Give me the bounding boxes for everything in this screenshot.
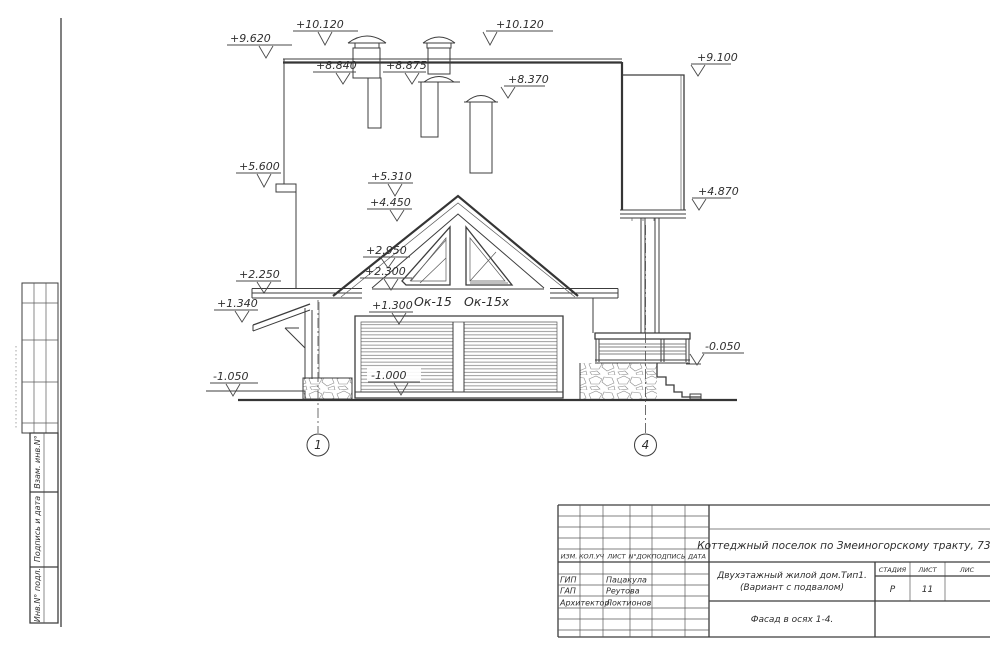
svg-text:ИЗМ.: ИЗМ. [561,553,578,561]
elevation-mark: +1.340 [214,297,258,322]
svg-text:+2.250: +2.250 [239,268,280,281]
svg-text:ЛИСТ: ЛИСТ [606,553,626,561]
elevation-mark: +4.870 [692,185,739,210]
elevation-mark: +8.840 [313,59,357,84]
name-gap: Реутова [606,587,640,596]
title-block-header-row: ИЗМ. КОЛ.УЧ ЛИСТ N°ДОК. ПОДПИСЬ ДАТА [561,553,706,561]
svg-text:+10.120: +10.120 [496,18,544,31]
object-title-line1: Двухэтажный жилой дом.Тип1. [716,571,867,581]
svg-text:+1.300: +1.300 [372,299,413,312]
elevation-mark: +2.250 [236,268,281,293]
name-gip: Пацакула [606,576,647,585]
house-elevation: Ок-15 Ок-15х [206,36,737,400]
svg-text:+8.875: +8.875 [386,59,427,72]
elevation-mark: +5.310 [368,170,413,196]
object-title-line2: (Вариант с подвалом) [740,583,844,593]
svg-text:+4.450: +4.450 [370,196,411,209]
svg-text:+4.870: +4.870 [698,185,739,198]
entry-canopy [253,302,352,399]
svg-text:+5.600: +5.600 [239,160,280,173]
elevation-mark: -1.050 [210,370,258,396]
view-title: Фасад в осях 1-4. [751,615,834,625]
name-arch: Локтионов [605,599,652,608]
sheet-label: ЛИСТ [917,566,937,574]
garage-doors [355,316,563,398]
svg-text:+9.620: +9.620 [230,32,271,45]
svg-text:+2.300: +2.300 [365,265,406,278]
title-block: ИЗМ. КОЛ.УЧ ЛИСТ N°ДОК. ПОДПИСЬ ДАТА ГИП… [558,505,990,637]
sidebar-label-podpis: Подпись и дата [33,496,42,562]
right-roof-block [620,75,686,221]
elevation-mark: +5.600 [236,160,281,187]
axis-4-label: 4 [642,438,650,452]
svg-text:ПОДПИСЬ: ПОДПИСЬ [652,553,686,561]
elevation-mark: +9.620 [227,32,292,58]
svg-text:-0.050: -0.050 [705,340,740,353]
porch-railing [595,333,690,363]
axis-1-label: 1 [314,438,322,452]
svg-text:-1.000: -1.000 [371,369,406,382]
window-label-right: Ок-15х [464,294,510,309]
elevation-mark: +9.100 [691,51,738,76]
sheet-value: 11 [922,585,933,595]
chimney-left [348,36,386,128]
sidebar-stamp-column: Взам. инв.N° Подпись и дата Инв.N° подл. [16,283,58,623]
elevation-mark: +8.370 [501,73,549,98]
title-block-signatures: ГИП Пацакула ГАП Реутова Архитектор Локт… [559,576,652,608]
svg-text:+8.370: +8.370 [508,73,549,86]
svg-text:N°ДОК.: N°ДОК. [629,553,654,561]
stage-sheet-cells: СТАДИЯ ЛИСТ ЛИС Р 11 [879,566,975,595]
elevation-mark: +8.875 [383,59,427,84]
stage-value: Р [890,585,896,595]
elevation-mark: +10.120 [293,18,358,45]
project-title: Коттеджный поселок по Змеиногорскому тра… [697,540,990,552]
stage-label: СТАДИЯ [879,566,907,574]
vent-pipe [464,96,498,174]
role-gap: ГАП [560,587,576,596]
svg-text:КОЛ.УЧ: КОЛ.УЧ [579,553,605,561]
main-roof [276,59,622,289]
elevation-mark: -0.050 [686,340,744,365]
drawing-sheet: Ок-15 Ок-15х [0,0,990,656]
svg-text:+1.340: +1.340 [217,297,258,310]
sheets-label: ЛИС [959,566,975,574]
facade-drawing-canvas: Ок-15 Ок-15х [0,0,990,656]
svg-text:+2.950: +2.950 [366,244,407,257]
sidebar-label-vzam: Взам. инв.N° [33,435,42,488]
svg-text:ДАТА: ДАТА [687,553,706,561]
porch-column [641,218,659,333]
role-gip: ГИП [560,576,576,585]
chimney-middle [418,37,460,137]
svg-text:+9.100: +9.100 [697,51,738,64]
elevation-mark: +1.300 [369,299,413,324]
svg-text:-1.050: -1.050 [213,370,248,383]
window-label-left: Ок-15 [414,294,452,309]
svg-text:+5.310: +5.310 [371,170,412,183]
sidebar-label-inv: Инв.N° подл. [33,568,42,622]
elevation-mark: +4.450 [367,196,412,221]
svg-text:+10.120: +10.120 [296,18,344,31]
role-arch: Архитектор [559,599,610,608]
porch-base-stairs [580,363,701,399]
elevation-mark: +2.300 [360,265,412,290]
svg-text:+8.840: +8.840 [316,59,357,72]
elevation-mark: +10.120 [483,18,553,45]
